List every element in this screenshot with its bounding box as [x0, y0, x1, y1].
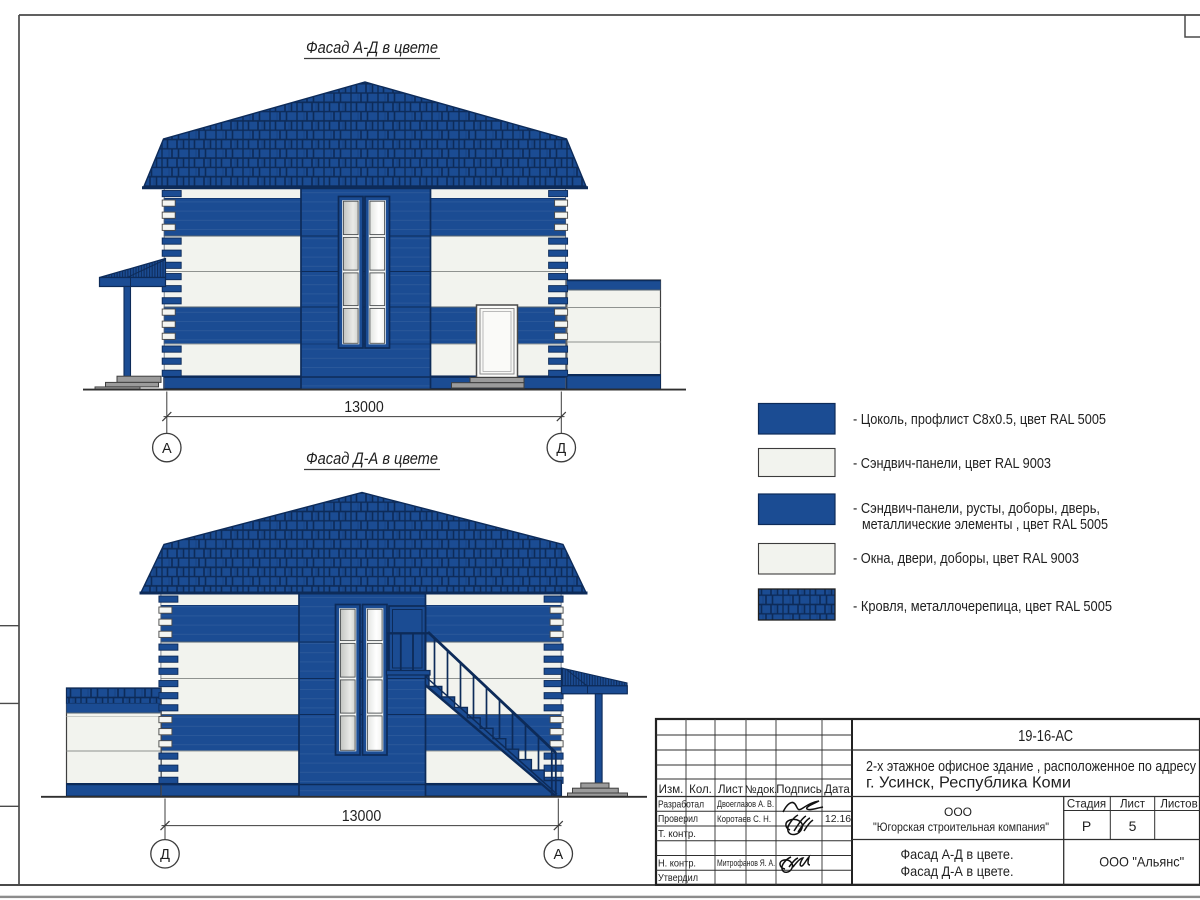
- svg-text:Лист: Лист: [718, 784, 744, 796]
- svg-text:А: А: [162, 441, 172, 457]
- svg-text:Изм.: Изм.: [659, 784, 684, 796]
- svg-text:2-х этажное офисное здание , р: 2-х этажное офисное здание , расположенн…: [866, 758, 1196, 775]
- svg-text:13000: 13000: [342, 808, 382, 825]
- svg-text:Двоеглазов А. В.: Двоеглазов А. В.: [717, 799, 774, 809]
- svg-text:г. Усинск, Республика Коми: г. Усинск, Республика Коми: [866, 775, 1071, 792]
- svg-text:- Кровля, металлочерепица, цве: - Кровля, металлочерепица, цвет RAL 5005: [853, 598, 1112, 615]
- svg-text:19-16-АС: 19-16-АС: [1018, 728, 1073, 745]
- svg-text:ООО "Альянс": ООО "Альянс": [1099, 854, 1184, 870]
- svg-text:металлические элементы , цвет: металлические элементы , цвет RAL 5005: [862, 516, 1108, 533]
- svg-text:Митрофанов Я. А.: Митрофанов Я. А.: [717, 858, 775, 868]
- svg-text:Листов: Листов: [1160, 799, 1197, 811]
- svg-text:Фасад Д-А в цвете: Фасад Д-А в цвете: [306, 449, 438, 468]
- svg-text:Т. контр.: Т. контр.: [658, 828, 696, 840]
- svg-text:Д: Д: [556, 441, 566, 457]
- svg-text:5: 5: [1129, 818, 1137, 834]
- svg-text:Подпись: Подпись: [776, 784, 822, 796]
- svg-text:Д: Д: [160, 847, 170, 863]
- svg-text:Проверил: Проверил: [658, 813, 698, 825]
- svg-text:Н. контр.: Н. контр.: [658, 857, 696, 869]
- svg-text:Лист: Лист: [1120, 799, 1146, 811]
- svg-text:- Сэндвич-панели, русты, добор: - Сэндвич-панели, русты, доборы, дверь,: [853, 500, 1100, 517]
- svg-text:Коротаев С. Н.: Коротаев С. Н.: [717, 814, 771, 824]
- svg-text:А: А: [553, 847, 563, 863]
- svg-text:- Окна, двери, доборы, цвет RA: - Окна, двери, доборы, цвет RAL 9003: [853, 550, 1079, 567]
- svg-text:Дата: Дата: [824, 784, 850, 796]
- svg-text:- Сэндвич-панели, цвет RAL 900: - Сэндвич-панели, цвет RAL 9003: [853, 455, 1051, 472]
- svg-text:№док.: №док.: [745, 784, 777, 796]
- svg-text:Стадия: Стадия: [1067, 799, 1106, 811]
- svg-text:Фасад А-Д в цвете: Фасад А-Д в цвете: [306, 38, 438, 57]
- svg-text:- Цоколь, профлист С8х0.5, цве: - Цоколь, профлист С8х0.5, цвет RAL 5005: [853, 411, 1106, 428]
- svg-text:ООО: ООО: [944, 805, 972, 819]
- svg-text:12.16: 12.16: [825, 813, 851, 825]
- svg-text:13000: 13000: [344, 399, 384, 416]
- svg-text:Кол.: Кол.: [689, 784, 712, 796]
- svg-text:Фасад А-Д в цвете.: Фасад А-Д в цвете.: [901, 846, 1014, 862]
- svg-text:Разработал: Разработал: [658, 799, 704, 811]
- svg-text:"Югорская строительная компани: "Югорская строительная компания": [873, 820, 1049, 834]
- svg-text:Утвердил: Утвердил: [658, 872, 698, 884]
- svg-text:Р: Р: [1082, 818, 1091, 834]
- svg-text:Фасад Д-А в цвете.: Фасад Д-А в цвете.: [901, 863, 1014, 879]
